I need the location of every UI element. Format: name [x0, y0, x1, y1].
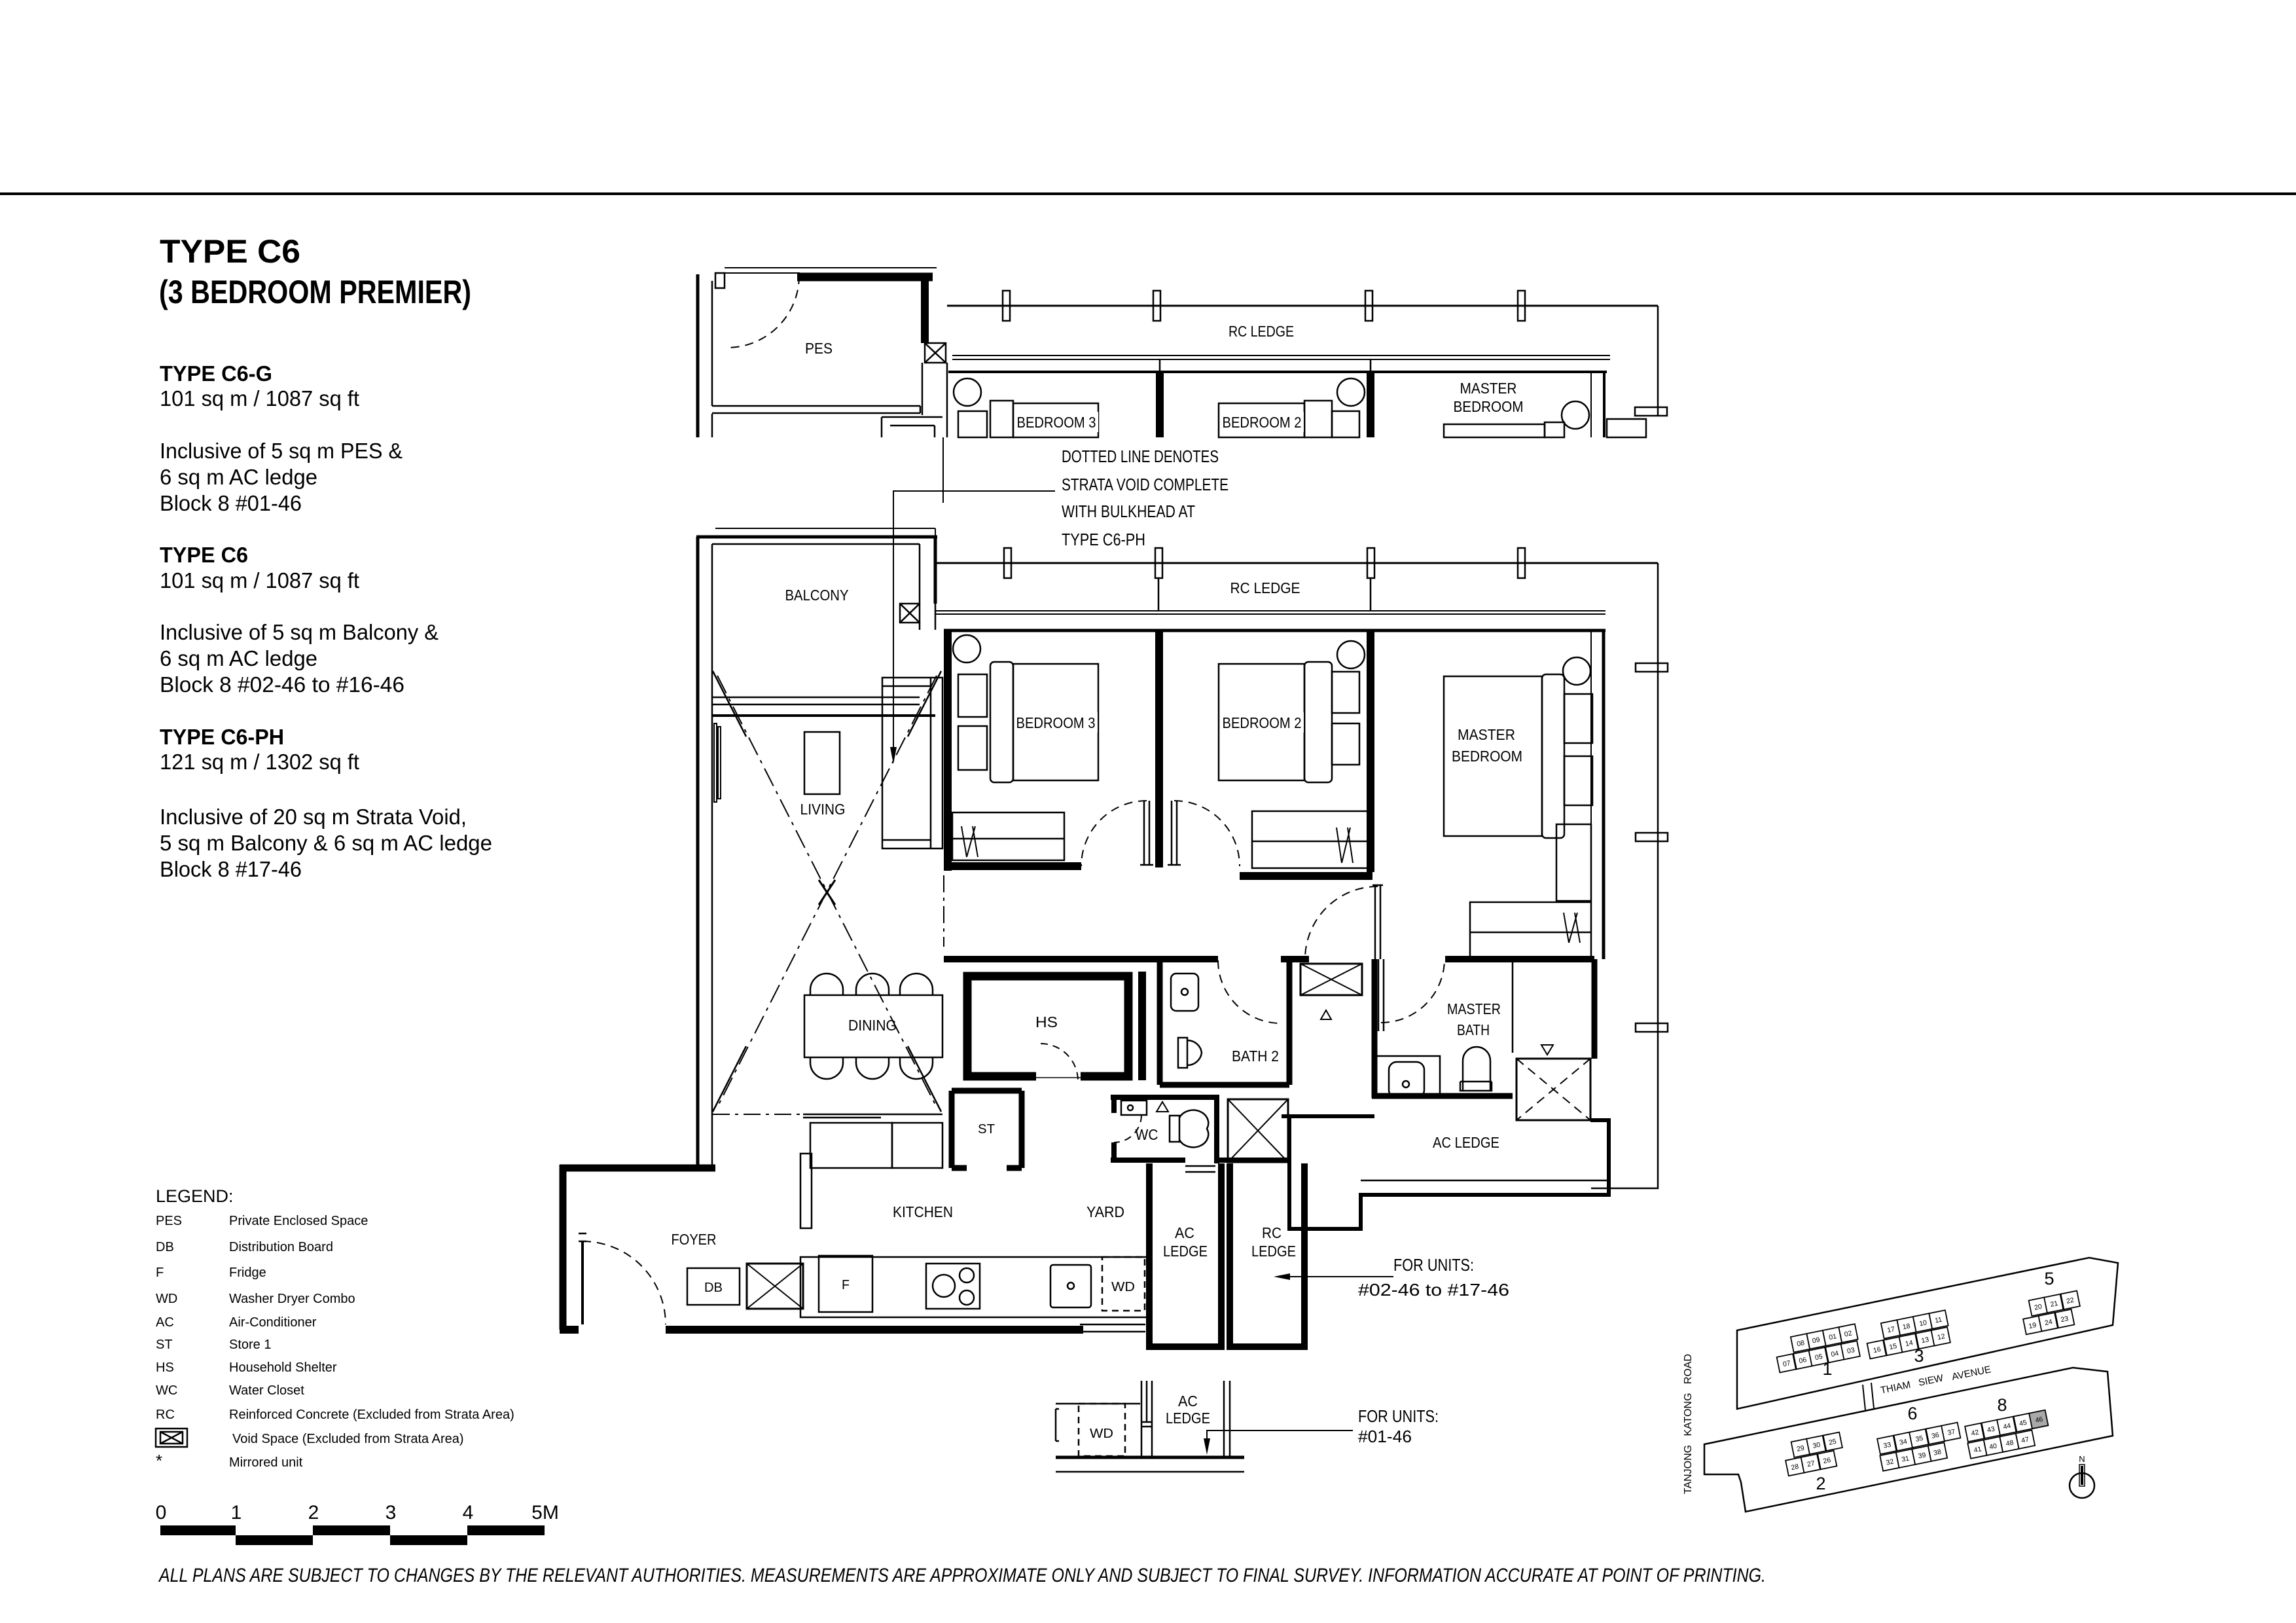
svg-text:101 sq m / 1087 sq ft: 101 sq m / 1087 sq ft: [160, 386, 359, 410]
svg-text:5 sq m Balcony & 6 sq m AC led: 5 sq m Balcony & 6 sq m AC ledge: [160, 831, 492, 855]
svg-text:5M: 5M: [531, 1502, 559, 1523]
svg-text:RC LEDGE: RC LEDGE: [1229, 323, 1294, 340]
svg-text:BEDROOM 3: BEDROOM 3: [1016, 714, 1096, 731]
svg-text:3: 3: [386, 1502, 397, 1523]
svg-text:STRATA VOID COMPLETE: STRATA VOID COMPLETE: [1062, 475, 1229, 494]
svg-text:4: 4: [463, 1502, 474, 1523]
svg-text:TYPE C6-PH: TYPE C6-PH: [1062, 530, 1145, 549]
svg-text:101 sq m / 1087 sq ft: 101 sq m / 1087 sq ft: [160, 568, 359, 593]
svg-text:FOYER: FOYER: [672, 1231, 717, 1248]
svg-text:Inclusive of 5 sq m PES &: Inclusive of 5 sq m PES &: [160, 439, 403, 463]
svg-text:LEDGE: LEDGE: [1251, 1243, 1296, 1260]
svg-text:BALCONY: BALCONY: [785, 587, 849, 604]
svg-text:WC: WC: [1136, 1126, 1158, 1143]
svg-text:F: F: [156, 1266, 164, 1280]
svg-text:#01-46: #01-46: [1358, 1427, 1412, 1446]
svg-text:Reinforced Concrete (Excluded: Reinforced Concrete (Excluded from Strat…: [229, 1408, 514, 1422]
svg-text:DINING: DINING: [848, 1017, 897, 1034]
svg-text:8: 8: [1997, 1395, 2007, 1415]
svg-text:TANJONG KATONG ROAD: TANJONG KATONG ROAD: [1683, 1354, 1694, 1494]
svg-text:Household Shelter: Household Shelter: [229, 1360, 337, 1375]
svg-text:6 sq m AC ledge: 6 sq m AC ledge: [160, 465, 317, 489]
svg-text:RC: RC: [156, 1408, 175, 1422]
svg-text:121 sq m / 1302 sq ft: 121 sq m / 1302 sq ft: [160, 750, 359, 774]
svg-text:WC: WC: [156, 1383, 177, 1398]
svg-text:TYPE C6-PH: TYPE C6-PH: [160, 725, 284, 749]
svg-text:ALL PLANS ARE SUBJECT TO CHANG: ALL PLANS ARE SUBJECT TO CHANGES BY THE …: [158, 1565, 1766, 1586]
svg-text:Inclusive of 20 sq m Strata Vo: Inclusive of 20 sq m Strata Void,: [160, 805, 467, 829]
svg-text:WD: WD: [1090, 1427, 1113, 1441]
svg-text:AC: AC: [1178, 1393, 1198, 1410]
svg-text:MASTER: MASTER: [1460, 380, 1517, 397]
svg-text:#02-46 to #17-46: #02-46 to #17-46: [1358, 1280, 1509, 1300]
svg-text:AC: AC: [156, 1315, 174, 1330]
svg-text:Block 8 #01-46: Block 8 #01-46: [160, 491, 302, 515]
svg-text:BEDROOM 2: BEDROOM 2: [1223, 714, 1302, 731]
svg-text:FOR UNITS:: FOR UNITS:: [1393, 1255, 1474, 1275]
svg-text:6 sq m AC ledge: 6 sq m AC ledge: [160, 646, 317, 670]
svg-text:2: 2: [308, 1502, 319, 1523]
svg-text:Washer Dryer Combo: Washer Dryer Combo: [229, 1292, 355, 1306]
svg-text:BEDROOM: BEDROOM: [1454, 398, 1524, 415]
svg-text:Mirrored unit: Mirrored unit: [229, 1455, 303, 1470]
svg-text:DB: DB: [156, 1240, 174, 1254]
svg-text:1: 1: [1822, 1359, 1832, 1379]
svg-text:HS: HS: [1035, 1013, 1058, 1030]
svg-text:TYPE C6: TYPE C6: [160, 543, 248, 567]
svg-text:WD: WD: [156, 1292, 177, 1306]
svg-text:1: 1: [231, 1502, 242, 1523]
svg-text:BATH 2: BATH 2: [1232, 1048, 1279, 1065]
svg-text:2: 2: [1816, 1474, 1825, 1493]
svg-text:BEDROOM: BEDROOM: [1452, 748, 1522, 765]
svg-text:AC: AC: [1175, 1224, 1194, 1241]
svg-text:Distribution Board: Distribution Board: [229, 1240, 333, 1254]
svg-text:3: 3: [1914, 1346, 1924, 1366]
svg-text:YARD: YARD: [1086, 1203, 1124, 1220]
svg-text:Fridge: Fridge: [229, 1266, 266, 1280]
svg-text:LIVING: LIVING: [800, 801, 846, 818]
svg-text:Private Enclosed Space: Private Enclosed Space: [229, 1214, 368, 1228]
svg-text:*: *: [156, 1451, 162, 1470]
svg-text:HS: HS: [156, 1360, 174, 1375]
svg-text:N: N: [2079, 1454, 2085, 1464]
svg-text:MASTER: MASTER: [1458, 726, 1515, 743]
svg-text:WITH BULKHEAD AT: WITH BULKHEAD AT: [1062, 501, 1195, 521]
svg-text:BEDROOM 3: BEDROOM 3: [1017, 414, 1096, 431]
svg-text:RC: RC: [1262, 1224, 1282, 1241]
svg-text:DB: DB: [704, 1281, 723, 1295]
svg-text:Block 8 #17-46: Block 8 #17-46: [160, 857, 302, 881]
svg-text:LEDGE: LEDGE: [1166, 1410, 1210, 1427]
svg-text:LEDGE: LEDGE: [1163, 1243, 1208, 1260]
svg-text:MASTER: MASTER: [1447, 1000, 1501, 1017]
svg-text:Block 8 #02-46 to #16-46: Block 8 #02-46 to #16-46: [160, 672, 404, 697]
svg-text:BEDROOM 2: BEDROOM 2: [1223, 414, 1302, 431]
svg-text:DOTTED LINE DENOTES: DOTTED LINE DENOTES: [1062, 447, 1219, 466]
svg-text:TYPE C6: TYPE C6: [160, 233, 300, 270]
svg-text:BATH: BATH: [1457, 1021, 1490, 1038]
svg-text:Store 1: Store 1: [229, 1338, 271, 1352]
svg-text:Inclusive of 5 sq m Balcony &: Inclusive of 5 sq m Balcony &: [160, 620, 439, 644]
svg-text:WD: WD: [1111, 1280, 1135, 1294]
svg-text:(3 BEDROOM PREMIER): (3 BEDROOM PREMIER): [159, 274, 471, 310]
svg-text:KITCHEN: KITCHEN: [893, 1203, 953, 1220]
svg-text:0: 0: [156, 1502, 167, 1523]
svg-text:Air-Conditioner: Air-Conditioner: [229, 1315, 317, 1330]
svg-text:F: F: [842, 1278, 850, 1292]
svg-text:RC LEDGE: RC LEDGE: [1230, 579, 1300, 596]
svg-text:PES: PES: [805, 340, 833, 357]
svg-text:Void Space (Excluded from Stra: Void Space (Excluded from Strata Area): [232, 1432, 464, 1446]
svg-text:TYPE C6-G: TYPE C6-G: [160, 361, 272, 386]
svg-text:5: 5: [2044, 1269, 2054, 1288]
svg-text:6: 6: [1907, 1404, 1917, 1423]
svg-text:ST: ST: [978, 1122, 995, 1137]
svg-text:LEGEND:: LEGEND:: [156, 1186, 234, 1206]
svg-text:FOR UNITS:: FOR UNITS:: [1358, 1406, 1439, 1426]
svg-text:Water Closet: Water Closet: [229, 1383, 304, 1398]
svg-text:AC LEDGE: AC LEDGE: [1433, 1134, 1499, 1151]
svg-text:ST: ST: [156, 1338, 173, 1352]
svg-text:PES: PES: [156, 1214, 182, 1228]
